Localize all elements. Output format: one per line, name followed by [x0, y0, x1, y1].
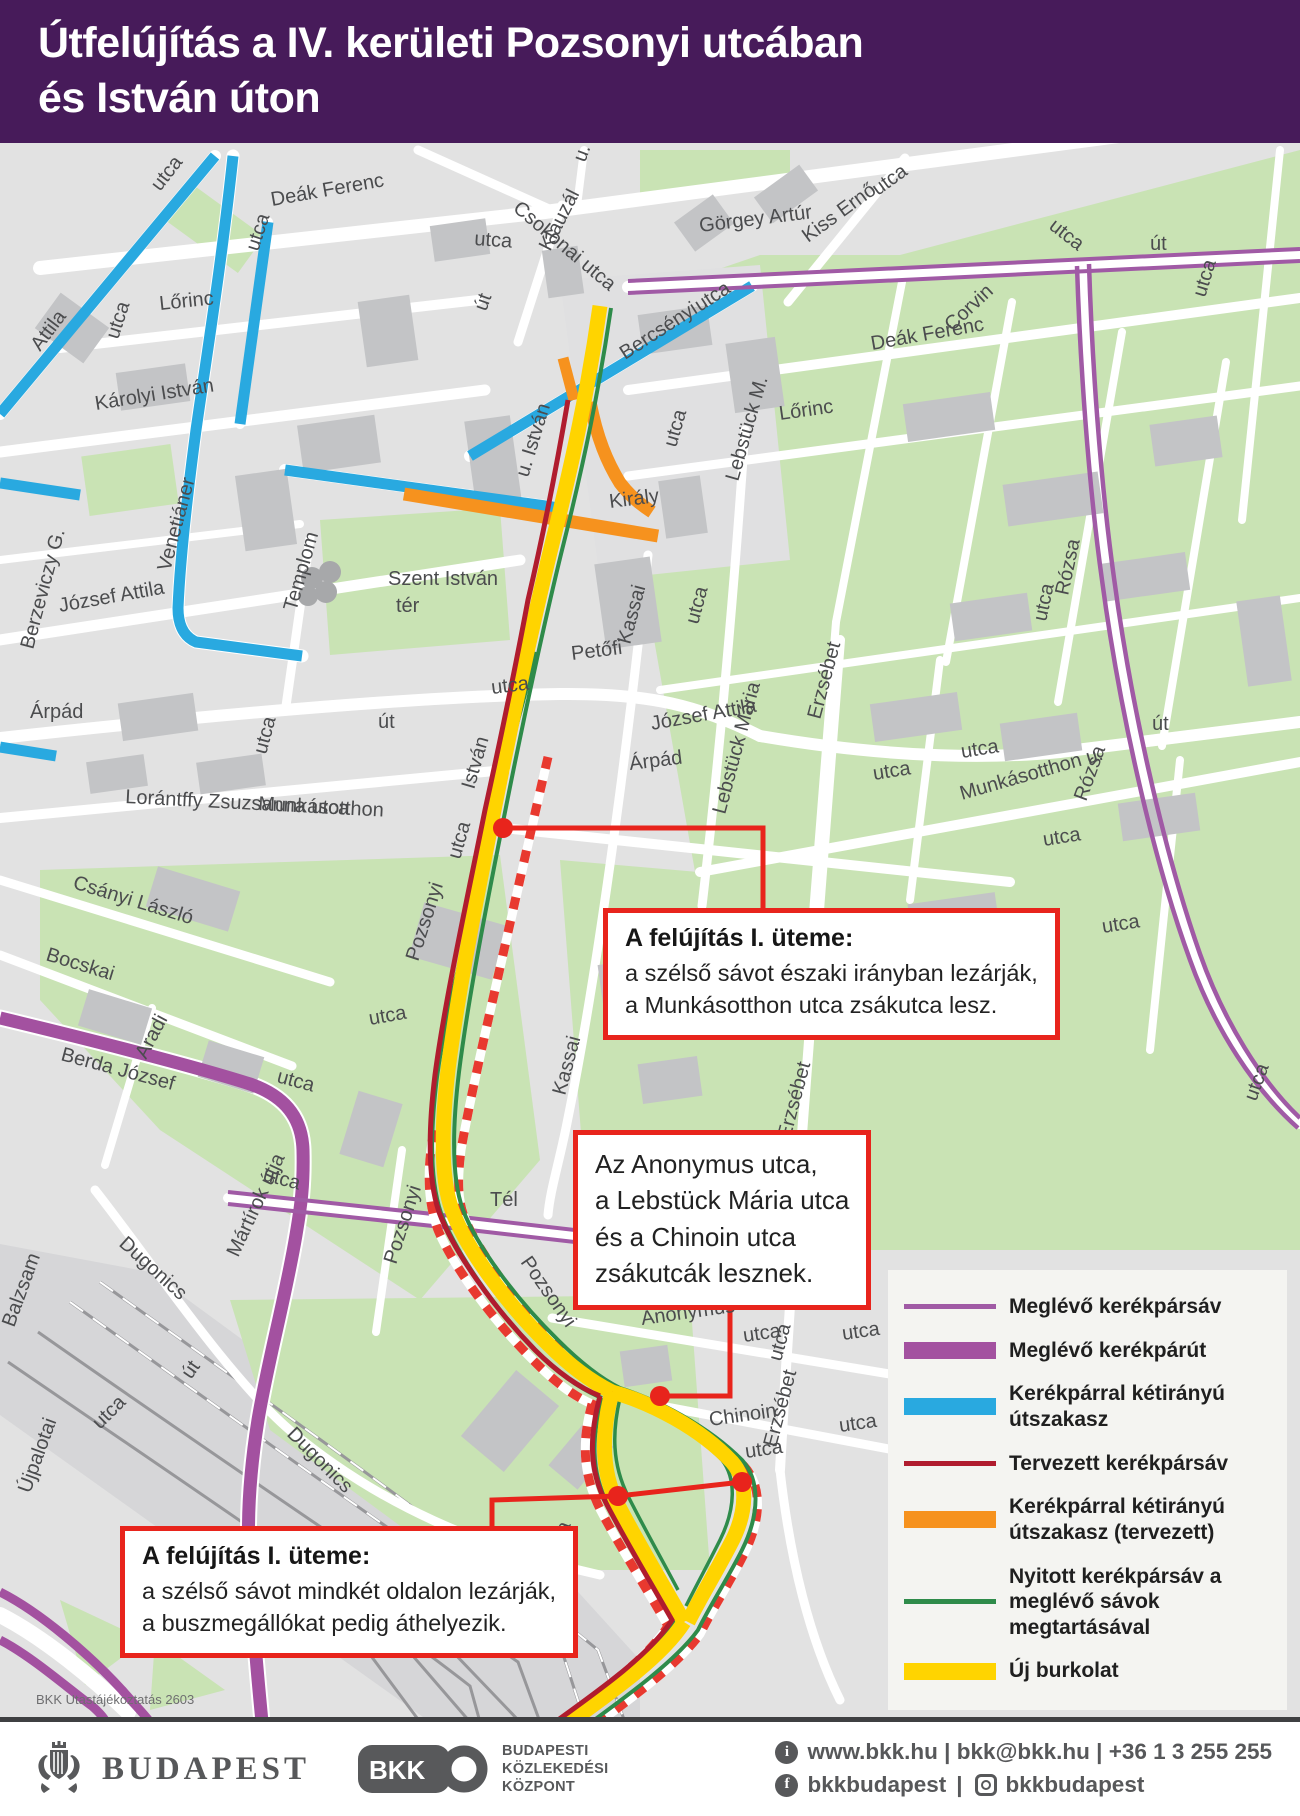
legend-item-2: Kerékpárral kétirányú útszakasz: [904, 1381, 1279, 1432]
legend-swatch-icon: [904, 1663, 996, 1680]
bkk-logo-block: BKK BUDAPESTI KÖZLEKEDÉSI KÖZPONT: [358, 1741, 608, 1797]
page-title-line1: Útfelújítás a IV. kerületi Pozsonyi utcá…: [38, 16, 1300, 71]
bkk-name-line: KÖZLEKEDÉSI: [502, 1760, 608, 1778]
callout-line: Az Anonymus utca,: [595, 1146, 849, 1182]
info-icon: i: [775, 1741, 798, 1764]
bkk-logo-text-svg: BKK: [369, 1755, 426, 1785]
legend-item-5: Nyitott kerékpársáv a meglévő sávok megt…: [904, 1564, 1279, 1641]
callout-body: a szélső sávot északi irányban lezárják,…: [625, 958, 1038, 1022]
callout-dead-end-streets: Az Anonymus utca,a Lebstück Mária utcaés…: [573, 1130, 871, 1310]
legend-swatch-icon: [904, 1304, 996, 1309]
legend-label: Meglévő kerékpársáv: [1009, 1294, 1221, 1320]
instagram-handle[interactable]: bkkbudapest: [1006, 1769, 1145, 1802]
callout-title: A felújítás I. üteme:: [625, 924, 1038, 953]
legend-label: Kerékpárral kétirányú útszakasz: [1009, 1381, 1277, 1432]
callout-phase1-both-sides: A felújítás I. üteme: a szélső sávot min…: [120, 1526, 578, 1658]
callout-line: a buszmegállókat pedig áthelyezik.: [142, 1608, 556, 1640]
bkk-name-line: KÖZPONT: [502, 1778, 608, 1796]
social-line: f bkkbudapest | bkkbudapest: [775, 1769, 1272, 1802]
street-label: út: [1152, 713, 1169, 735]
facebook-handle[interactable]: bkkbudapest: [807, 1769, 946, 1802]
bkk-name-line: BUDAPESTI: [502, 1742, 608, 1760]
legend-swatch-icon: [904, 1599, 996, 1604]
facebook-icon: f: [775, 1774, 798, 1797]
contact-text[interactable]: www.bkk.hu | bkk@bkk.hu | +36 1 3 255 25…: [807, 1736, 1272, 1769]
legend-label: Tervezett kerékpársáv: [1009, 1451, 1228, 1477]
street-label: Árpád: [30, 700, 83, 723]
page-footer: BUDAPEST BKK BUDAPESTI KÖZLEKEDÉSI KÖZPO…: [0, 1717, 1300, 1816]
street-label: utca: [474, 228, 514, 253]
callout-line: a szélső sávot mindkét oldalon lezárják,: [142, 1576, 556, 1608]
callout-phase1-north: A felújítás I. üteme: a szélső sávot ész…: [603, 908, 1060, 1040]
legend-swatch-icon: [904, 1461, 996, 1466]
legend-label: Kerékpárral kétirányú útszakasz (terveze…: [1009, 1494, 1277, 1545]
callout-body: a szélső sávot mindkét oldalon lezárják,…: [142, 1576, 556, 1640]
legend-swatch-icon: [904, 1342, 996, 1359]
budapest-crest-icon: [28, 1741, 90, 1797]
street-label: út: [1150, 233, 1167, 255]
street-label: Tél: [490, 1189, 518, 1211]
street-label: út: [378, 711, 395, 733]
legend-label: Meglévő kerékpárút: [1009, 1338, 1206, 1364]
instagram-icon: [975, 1774, 997, 1796]
legend-item-3: Tervezett kerékpársáv: [904, 1451, 1279, 1477]
callout-line: a Lebstück Mária utca: [595, 1182, 849, 1218]
contact-line: i www.bkk.hu | bkk@bkk.hu | +36 1 3 255 …: [775, 1736, 1272, 1769]
legend-rows: Meglévő kerékpársávMeglévő kerékpárútKer…: [904, 1294, 1279, 1684]
legend-item-0: Meglévő kerékpársáv: [904, 1294, 1279, 1320]
callout-title: A felújítás I. üteme:: [142, 1542, 556, 1571]
street-label: tér: [396, 595, 420, 617]
legend-item-6: Új burkolat: [904, 1658, 1279, 1684]
map-credit: BKK Utastájékoztatás 2603: [36, 1692, 194, 1707]
separator: |: [956, 1769, 962, 1802]
legend-swatch-icon: [904, 1398, 996, 1415]
street-label: utca: [490, 672, 531, 699]
callout-line: és a Chinoin utca: [595, 1219, 849, 1255]
map-legend: Meglévő kerékpársávMeglévő kerékpárútKer…: [888, 1270, 1287, 1710]
callout-line: zsákutcák lesznek.: [595, 1255, 849, 1291]
legend-label: Új burkolat: [1009, 1658, 1119, 1684]
callout-line: a szélső sávot északi irányban lezárják,: [625, 958, 1038, 990]
callout-body: Az Anonymus utca,a Lebstück Mária utcaés…: [595, 1146, 849, 1292]
legend-item-4: Kerékpárral kétirányú útszakasz (terveze…: [904, 1494, 1279, 1545]
legend-swatch-icon: [904, 1511, 996, 1528]
legend-item-1: Meglévő kerékpárút: [904, 1338, 1279, 1364]
page-title: Útfelújítás a IV. kerületi Pozsonyi utcá…: [0, 0, 1300, 126]
bkk-name: BUDAPESTI KÖZLEKEDÉSI KÖZPONT: [502, 1742, 608, 1796]
street-label: Szent István: [388, 568, 498, 590]
budapest-logo: BUDAPEST: [28, 1741, 310, 1797]
page-title-line2: és István úton: [38, 71, 1300, 126]
bkk-logo-icon: BKK: [358, 1741, 490, 1797]
page-header: Útfelújítás a IV. kerületi Pozsonyi utcá…: [0, 0, 1300, 143]
legend-label: Nyitott kerékpársáv a meglévő sávok megt…: [1009, 1564, 1277, 1641]
contact-block: i www.bkk.hu | bkk@bkk.hu | +36 1 3 255 …: [775, 1736, 1272, 1801]
budapest-logo-text: BUDAPEST: [102, 1751, 310, 1788]
callout-line: a Munkásotthon utca zsákutca lesz.: [625, 990, 1038, 1022]
